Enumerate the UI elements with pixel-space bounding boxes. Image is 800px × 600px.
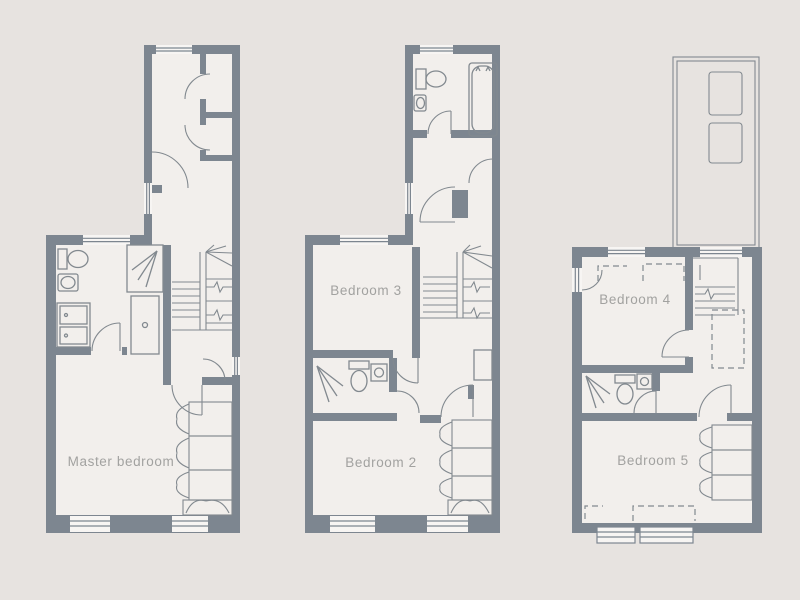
dormer-window [597, 527, 635, 543]
window [83, 235, 130, 245]
room-label-bedroom-4: Bedroom 4 [599, 292, 670, 307]
roof-outline [673, 57, 759, 249]
floorplan-right: Bedroom 4 Bedroom 5 [572, 57, 762, 543]
eaves-recess [572, 268, 582, 292]
floorplan-page: Master bedroom [0, 0, 800, 600]
skylight-icon [709, 123, 742, 163]
floorplan-middle: Bedroom 3 Bedroom 2 [305, 45, 500, 533]
floorplan-left: Master bedroom [46, 45, 240, 533]
window [232, 357, 240, 375]
room-label-bedroom-5: Bedroom 5 [617, 453, 688, 468]
window [420, 45, 453, 54]
window [340, 235, 388, 245]
window [156, 45, 192, 54]
window [405, 183, 413, 214]
window [427, 516, 468, 532]
window [330, 516, 375, 532]
room-label-bedroom-3: Bedroom 3 [330, 283, 401, 298]
window [172, 516, 208, 532]
window [70, 516, 110, 532]
room-label-bedroom-2: Bedroom 2 [345, 455, 416, 470]
skylight-icon [709, 72, 742, 115]
room-label-master-bedroom: Master bedroom [68, 454, 175, 469]
floor-area [152, 54, 232, 245]
window [608, 247, 645, 257]
floorplan-canvas: Master bedroom [0, 0, 800, 600]
window [700, 247, 742, 257]
window [144, 183, 152, 214]
dormer-window [640, 527, 693, 543]
